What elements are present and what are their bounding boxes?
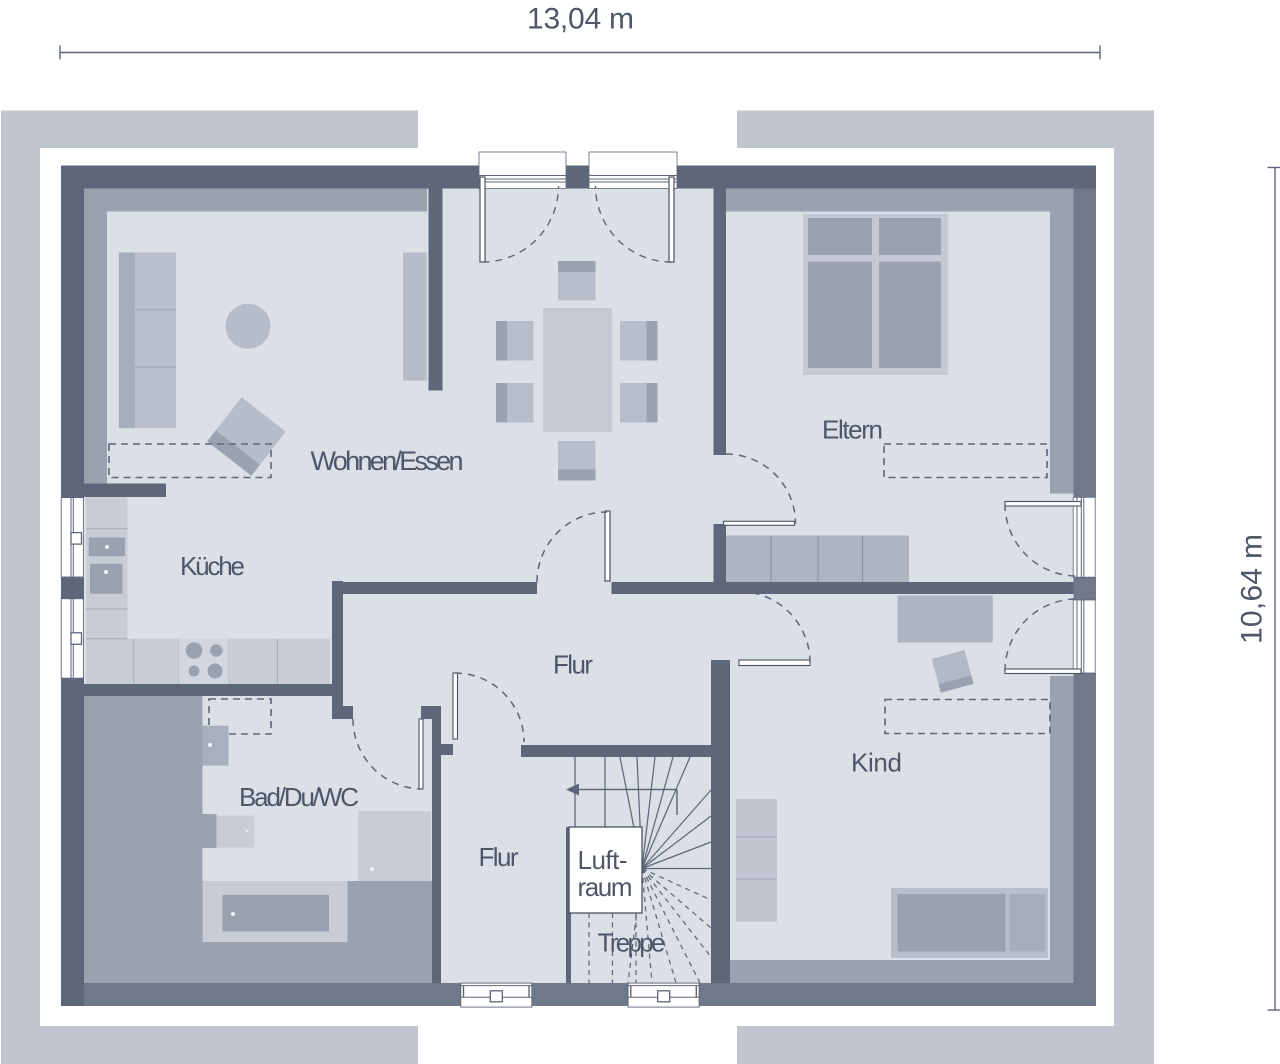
- svg-text:Flur: Flur: [479, 842, 519, 872]
- svg-text:Bad/Du/WC: Bad/Du/WC: [239, 782, 359, 812]
- svg-text:10,64 m: 10,64 m: [1236, 534, 1269, 644]
- svg-text:Treppe: Treppe: [598, 928, 666, 958]
- svg-text:Wohnen/Essen: Wohnen/Essen: [311, 446, 464, 476]
- svg-text:Flur: Flur: [553, 650, 593, 680]
- svg-text:Kind: Kind: [851, 748, 902, 778]
- svg-text:Küche: Küche: [180, 551, 245, 581]
- svg-text:raum: raum: [578, 872, 633, 902]
- svg-text:Luft-: Luft-: [578, 845, 628, 875]
- svg-text:Eltern: Eltern: [822, 415, 883, 445]
- svg-text:13,04 m: 13,04 m: [527, 3, 634, 36]
